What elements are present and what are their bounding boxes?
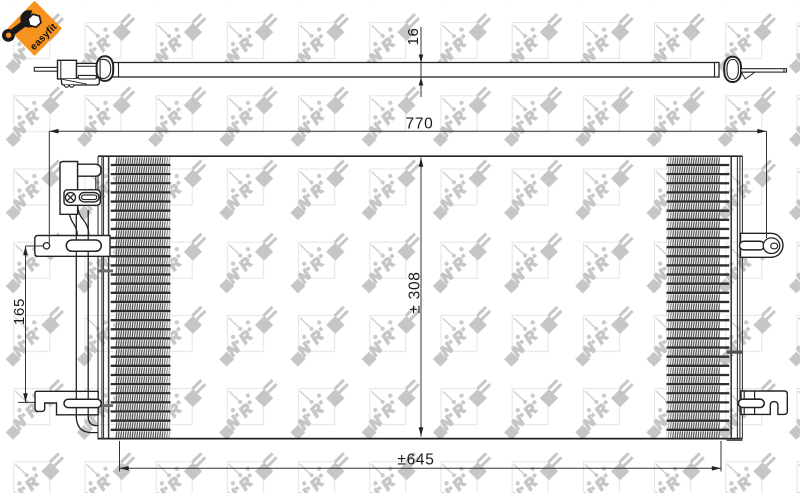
svg-text:±645: ±645 <box>397 452 434 469</box>
svg-text:± 308: ± 308 <box>407 271 424 313</box>
svg-text:16: 16 <box>405 27 422 45</box>
svg-text:770: 770 <box>406 116 434 133</box>
svg-text:165: 165 <box>11 298 28 325</box>
